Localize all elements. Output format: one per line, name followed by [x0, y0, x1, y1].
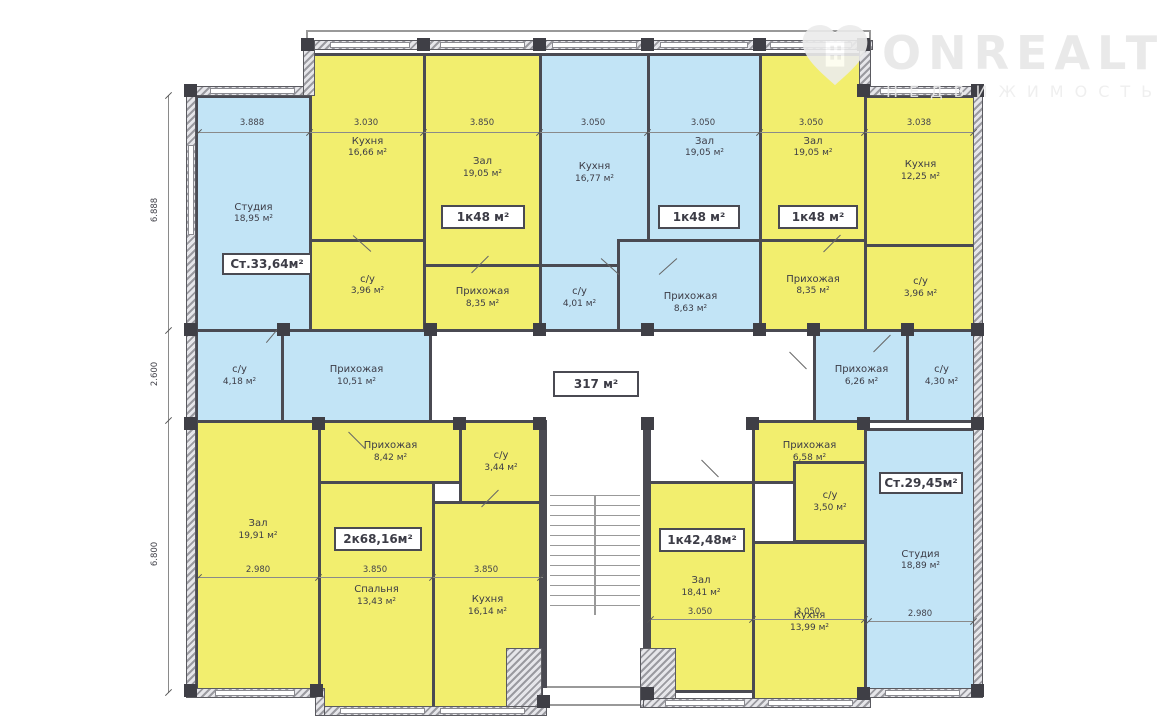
dim-label: 2.980: [898, 609, 942, 619]
window: [440, 708, 525, 714]
room-studio-bottomright: Студия18,89 м²: [864, 428, 977, 693]
onrealt-logo-heart-icon: [798, 18, 872, 92]
room-bedroom: Спальня13,43 м²: [318, 481, 435, 711]
window: [340, 708, 425, 714]
window: [660, 42, 748, 48]
room-hall: Зал19,05 м²: [423, 53, 542, 267]
dim-label: 3.038: [899, 118, 939, 128]
room-studio-topleft: Студия18,95 м²: [195, 95, 312, 332]
dim-label: 3.850: [464, 565, 508, 575]
column: [417, 38, 430, 51]
room-wc: с/у3,50 м²: [793, 461, 867, 543]
dim-label: 3.050: [786, 607, 830, 617]
dimension-line-left: [168, 95, 169, 693]
column: [857, 687, 870, 700]
stairs-divider: [594, 495, 596, 615]
watermark-brand: ONREALT: [882, 26, 1164, 80]
door-swing: [701, 460, 719, 478]
column: [184, 684, 197, 697]
floor-plan: Студия18,95 м² Кухня16,66 м² Зал19,05 м²…: [0, 0, 1170, 725]
door-swing: [789, 352, 807, 370]
watermark-subtitle: НЕДВИЖИМОСТЬ: [886, 82, 1163, 101]
column: [753, 323, 766, 336]
corridor-area-label: 317 м²: [553, 371, 639, 397]
outer-wall-right: [973, 86, 983, 698]
dim-label: 2.600: [150, 352, 160, 396]
column: [753, 38, 766, 51]
column: [533, 38, 546, 51]
apartment-label-1k48-c: 1к48 м²: [778, 205, 858, 229]
column: [971, 417, 984, 430]
room-kitchen: Кухня13,99 м²: [752, 541, 867, 703]
room-entry: Прихожая8,63 м²: [617, 239, 764, 332]
window: [885, 690, 960, 696]
column: [537, 695, 550, 708]
room-kitchen: Кухня16,66 м²: [309, 53, 426, 242]
room-wc: с/у3,44 м²: [459, 420, 543, 504]
column: [453, 417, 466, 430]
column: [277, 323, 290, 336]
window: [440, 42, 525, 48]
column: [424, 323, 437, 336]
window: [768, 700, 853, 706]
apartment-label-1k48-a: 1к48 м²: [441, 205, 525, 229]
column: [184, 323, 197, 336]
column: [746, 417, 759, 430]
room-kitchen: Кухня16,77 м²: [539, 53, 650, 267]
column: [971, 323, 984, 336]
dim-label: 3.050: [683, 118, 723, 128]
dimension-line: [198, 577, 543, 578]
window: [188, 145, 194, 235]
apartment-label-studio-29: Ст.29,45м²: [879, 472, 963, 494]
apartment-label-studio-33: Ст.33,64м²: [222, 253, 312, 275]
dim-label: 3.850: [353, 565, 397, 575]
dim-label: 3.050: [573, 118, 613, 128]
dimension-line: [868, 621, 973, 622]
column: [312, 417, 325, 430]
column: [533, 417, 546, 430]
room-wc: с/у3,96 м²: [864, 244, 977, 332]
apartment-label-2k68: 2к68,16м²: [334, 527, 422, 551]
column: [641, 323, 654, 336]
column: [641, 38, 654, 51]
dim-label: 3.050: [791, 118, 831, 128]
column: [971, 684, 984, 697]
window: [552, 42, 637, 48]
dim-label: 3.850: [462, 118, 502, 128]
column: [807, 323, 820, 336]
column: [901, 323, 914, 336]
room-entry: Прихожая8,35 м²: [423, 264, 542, 332]
column: [857, 417, 870, 430]
watermark: ONREALT НЕДВИЖИМОСТЬ: [790, 12, 1170, 112]
apartment-label-1k42: 1к42,48м²: [659, 528, 745, 552]
dim-label: 3.050: [678, 607, 722, 617]
column: [301, 38, 314, 51]
column: [533, 323, 546, 336]
room-entry: Прихожая8,35 м²: [759, 239, 867, 332]
window: [330, 42, 410, 48]
window: [210, 88, 295, 94]
column: [641, 417, 654, 430]
window: [215, 690, 295, 696]
dim-label: 2.980: [236, 565, 280, 575]
room-wc: с/у4,30 м²: [906, 329, 977, 423]
dimension-line-top: [198, 132, 974, 133]
entrance-landing: [547, 686, 643, 688]
room-wc: с/у4,01 м²: [539, 264, 620, 332]
room-entry: Прихожая6,26 м²: [813, 329, 910, 423]
apartment-label-1k48-b: 1к48 м²: [658, 205, 740, 229]
room-wc: с/у3,96 м²: [309, 239, 426, 332]
column: [184, 417, 197, 430]
dim-label: 3.030: [346, 118, 386, 128]
dim-label: 3.888: [232, 118, 272, 128]
column: [310, 684, 323, 697]
window: [665, 700, 745, 706]
room-entry: Прихожая10,51 м²: [281, 329, 432, 423]
dimension-line: [650, 619, 865, 620]
column: [641, 687, 654, 700]
dim-tick: [165, 689, 172, 696]
room-hall: Зал19,91 м²: [195, 420, 321, 693]
room-wc: с/у4,18 м²: [195, 329, 284, 423]
room-entry: Прихожая8,42 м²: [318, 420, 463, 484]
entrance-step: [542, 704, 642, 706]
dim-label: 6.888: [150, 188, 160, 232]
column: [184, 84, 197, 97]
balcony-rail: [306, 30, 871, 32]
dim-label: 6.800: [150, 532, 160, 576]
